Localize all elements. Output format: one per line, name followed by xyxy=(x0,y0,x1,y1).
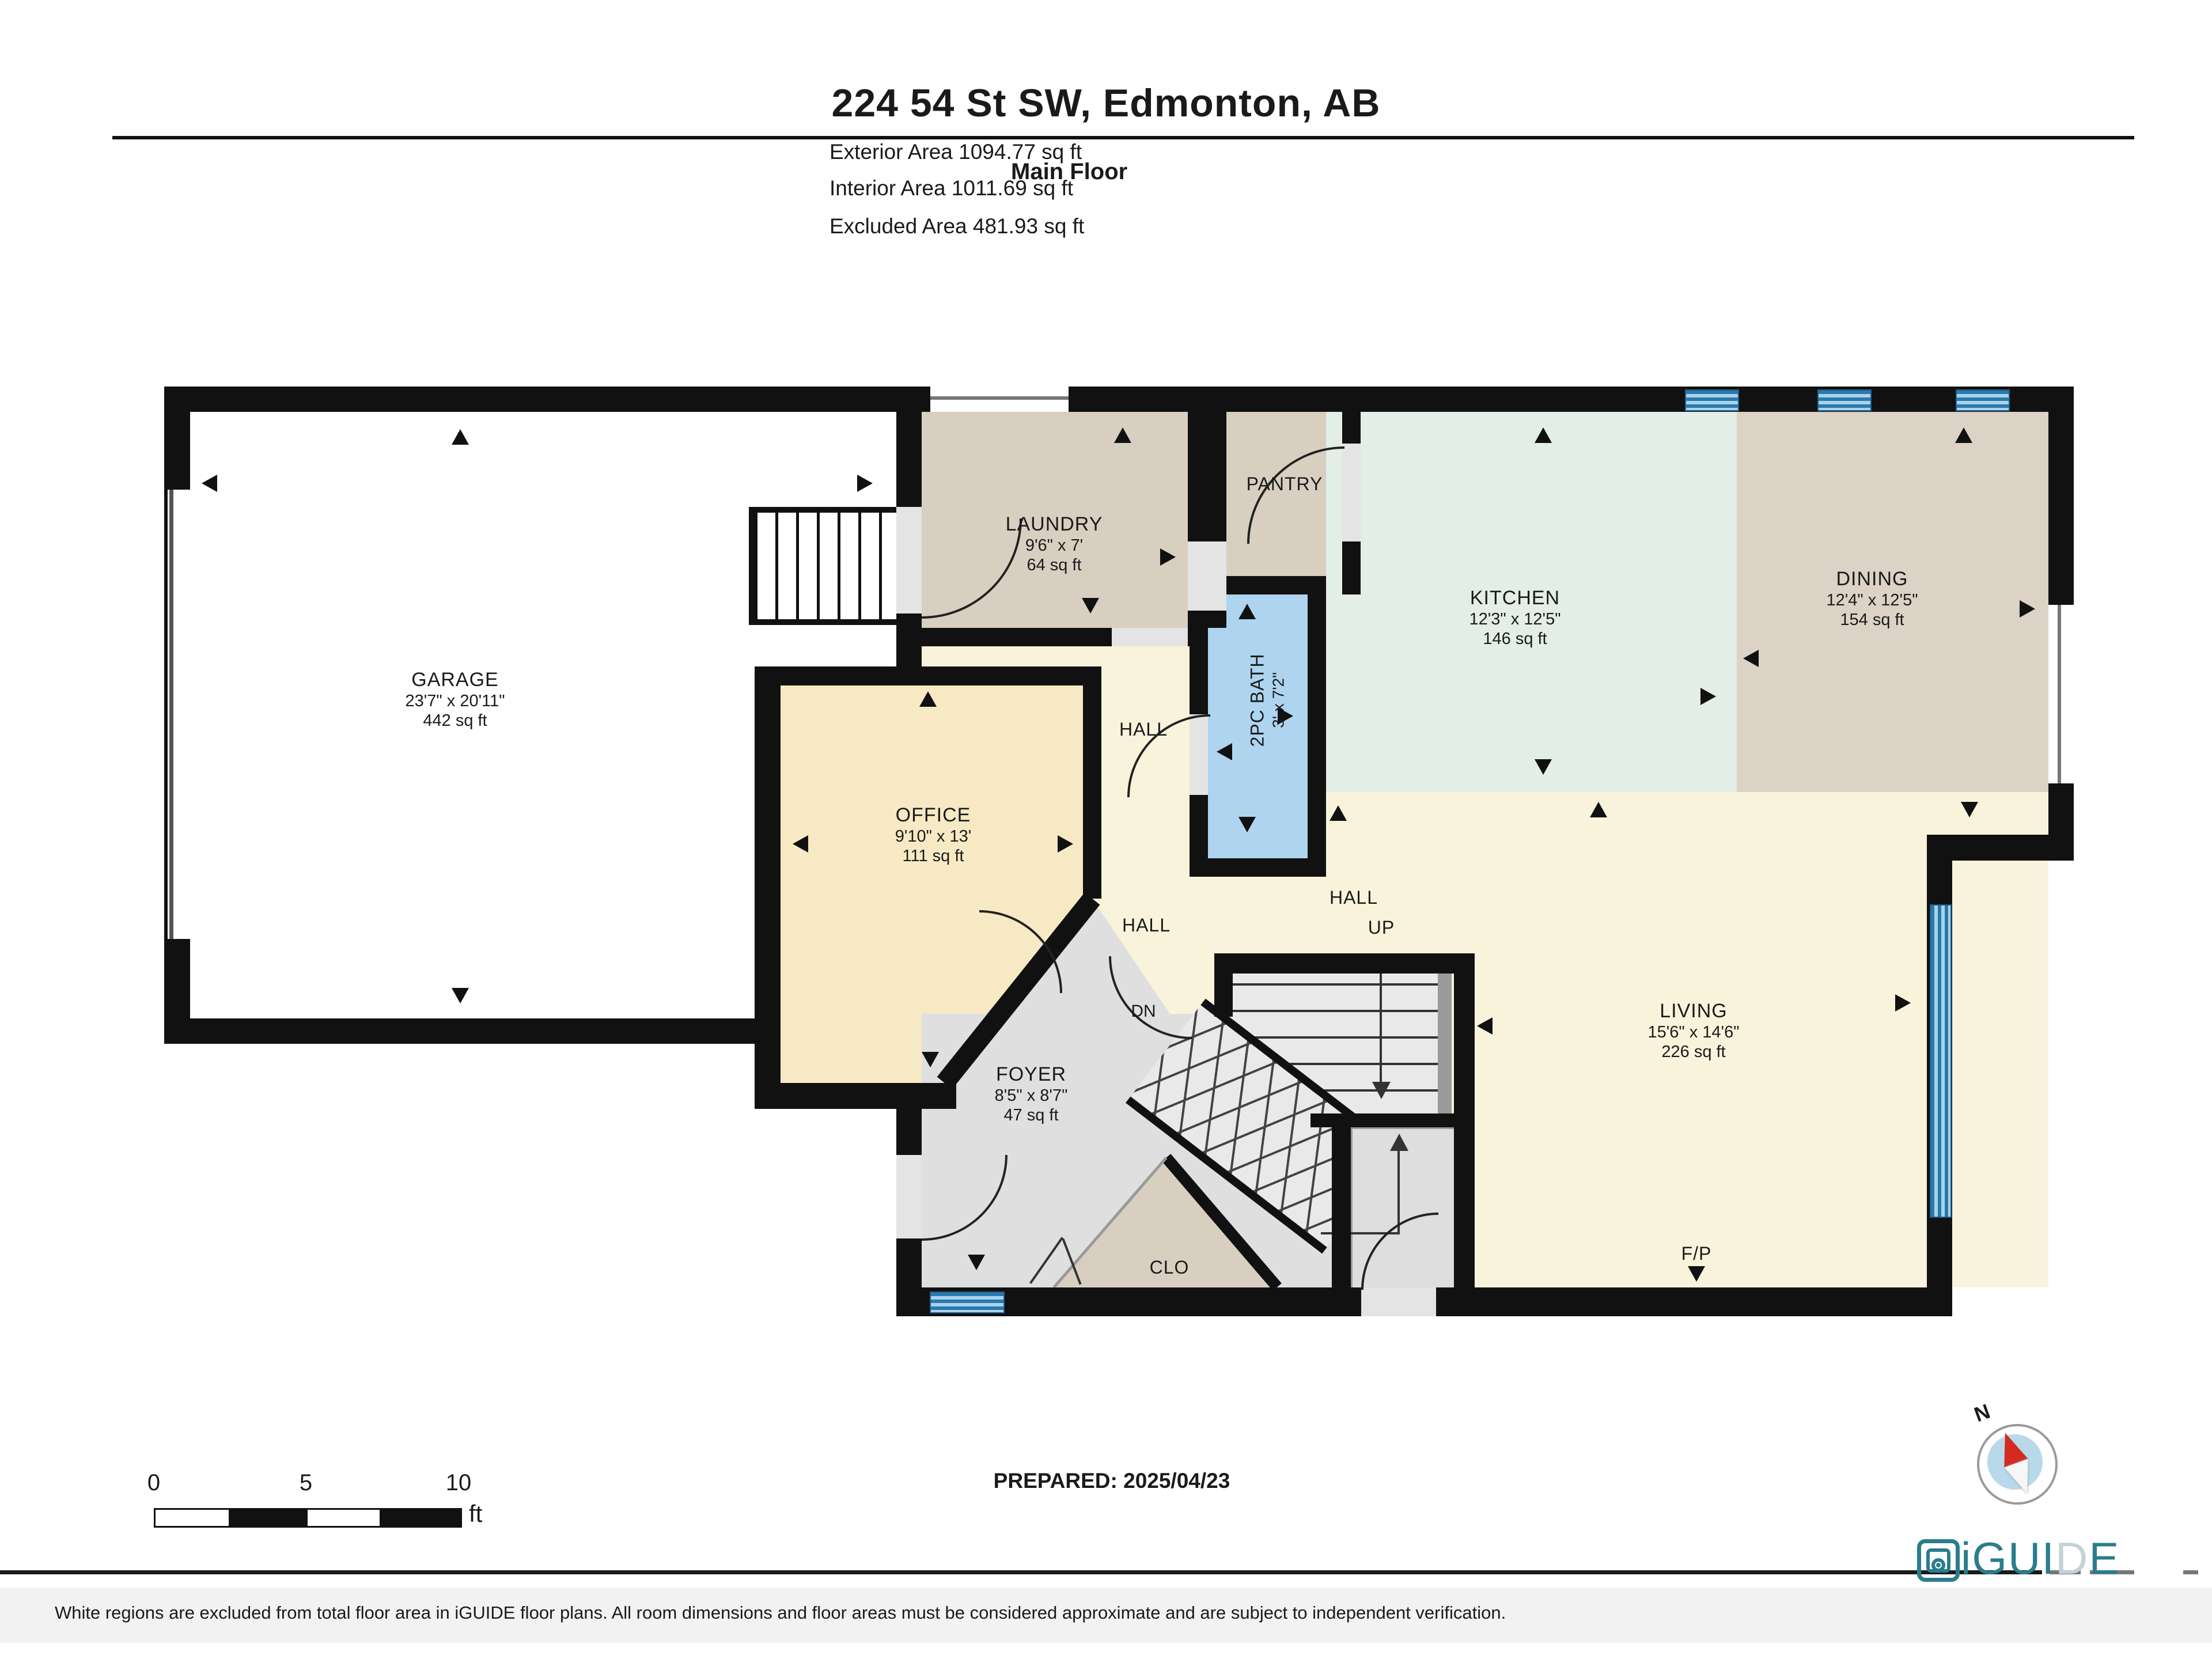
doorway-garage-stairs xyxy=(896,507,922,613)
measure-arrow xyxy=(1955,427,1972,443)
foyer-window xyxy=(930,1291,1005,1313)
measure-arrow xyxy=(1058,835,1073,853)
wall-office-right xyxy=(1083,685,1101,899)
excluded-area-text: Excluded Area 481.93 sq ft xyxy=(829,214,1084,238)
measure-arrow xyxy=(793,835,808,853)
measure-arrow xyxy=(202,475,217,492)
dining-window-2 xyxy=(1817,389,1872,411)
measure-arrow xyxy=(2020,600,2035,618)
doorway-laundry-hall xyxy=(1188,541,1226,611)
wall-landing-top xyxy=(1310,1113,1475,1127)
room-label-hall-lower: HALL xyxy=(1089,915,1204,937)
measure-arrow xyxy=(452,988,469,1003)
iguide-logo-icon xyxy=(1917,1539,1960,1582)
header-divider xyxy=(112,136,2134,139)
doorway-laundry-bottom xyxy=(1112,628,1188,646)
footer-divider xyxy=(0,1570,2042,1574)
room-label-closet: CLO xyxy=(1112,1257,1227,1279)
wall-stairs-left xyxy=(1214,953,1233,1017)
wall-garage-bottom xyxy=(164,1018,781,1044)
wall-bath-right xyxy=(1308,594,1326,877)
scale-tick-0: 0 xyxy=(131,1470,177,1496)
floorplan-page: 224 54 St SW, Edmonton, AB Exterior Area… xyxy=(0,0,2212,1659)
doorway-front-entry xyxy=(1361,1287,1436,1316)
up-stairs-arrow-head xyxy=(1372,1082,1391,1099)
label-up: UP xyxy=(1324,917,1439,939)
room-label-bath: 2PC BATH 3' x 7'2" xyxy=(1247,608,1288,792)
footer-disclaimer: White regions are excluded from total fl… xyxy=(55,1603,1840,1623)
room-label-pantry: PANTRY xyxy=(1227,474,1342,495)
page-title: 224 54 St SW, Edmonton, AB xyxy=(832,81,1381,126)
room-label-kitchen: KITCHEN 12'3" x 12'5" 146 sq ft xyxy=(1394,586,1636,649)
wall-office-left xyxy=(755,666,781,1109)
landing-arrow-line-v xyxy=(1397,1151,1400,1234)
prepared-date: PREPARED: 2025/04/23 xyxy=(979,1469,1244,1493)
measure-arrow xyxy=(452,429,469,445)
interior-area-text: Interior Area 1011.69 sq ft xyxy=(829,176,1073,200)
up-stairs-arrow-line xyxy=(1380,971,1382,1083)
dining-window-3 xyxy=(1956,389,2010,411)
dining-side-window-line xyxy=(2058,605,2061,783)
measure-arrow xyxy=(968,1255,985,1270)
measure-arrow xyxy=(1895,994,1911,1012)
measure-arrow xyxy=(1330,805,1347,821)
wall-dining-step xyxy=(1927,835,2074,861)
label-fireplace: F/P xyxy=(1639,1243,1754,1265)
measure-arrow xyxy=(1700,688,1716,705)
scale-bar-segment xyxy=(229,1510,308,1526)
iguide-logo-text: iGUIDE xyxy=(1961,1532,2120,1585)
measure-arrow xyxy=(1688,1266,1705,1282)
compass-icon xyxy=(1977,1424,2058,1505)
room-label-living: LIVING 15'6" x 14'6" 226 sq ft xyxy=(1573,999,1815,1062)
scale-unit: ft xyxy=(469,1500,482,1528)
scale-tick-5: 5 xyxy=(283,1470,329,1496)
measure-arrow xyxy=(1217,743,1232,760)
garage-door-line xyxy=(169,490,173,939)
measure-arrow xyxy=(1535,427,1552,443)
measure-arrow xyxy=(1082,598,1099,613)
wall-bath-bottom xyxy=(1190,858,1326,877)
wall-stairs-top xyxy=(1214,953,1475,974)
measure-arrow xyxy=(919,691,937,707)
measure-arrow xyxy=(1477,1017,1493,1035)
room-label-laundry: LAUNDRY 9'6" x 7' 64 sq ft xyxy=(933,513,1175,575)
measure-arrow xyxy=(1114,427,1131,443)
measure-arrow xyxy=(1961,802,1978,817)
room-label-dining: DINING 12'4" x 12'5" 154 sq ft xyxy=(1751,567,1993,630)
measure-arrow xyxy=(1535,759,1552,775)
room-label-office: OFFICE 9'10" x 13' 111 sq ft xyxy=(812,804,1054,866)
footer-divider-dash xyxy=(2183,1570,2198,1574)
room-label-foyer: FOYER 8'5" x 8'7" 47 sq ft xyxy=(910,1063,1152,1126)
doorway-foyer-side xyxy=(896,1155,922,1238)
landing-arrow-head xyxy=(1390,1134,1408,1151)
laundry-window-line xyxy=(930,396,1069,400)
dining-window-1 xyxy=(1685,389,1739,411)
living-window xyxy=(1930,904,1952,1218)
scale-bar xyxy=(154,1508,462,1528)
label-dn: DN xyxy=(1092,1001,1195,1021)
measure-arrow xyxy=(857,475,873,492)
dining-side-window-gap xyxy=(2048,605,2074,783)
measure-arrow xyxy=(1238,817,1256,832)
wall-office-top xyxy=(755,666,1101,685)
measure-arrow xyxy=(1590,802,1607,817)
wall-landing-left xyxy=(1332,1127,1351,1287)
measure-arrow xyxy=(1743,650,1759,667)
up-stairs-end xyxy=(1438,959,1452,1113)
scale-bar-segment xyxy=(380,1510,460,1526)
room-label-hall-upper: HALL xyxy=(1086,719,1201,741)
compass-north-label: N xyxy=(1971,1399,1994,1427)
wall-top xyxy=(164,387,2074,412)
doorway-pantry xyxy=(1342,444,1361,541)
room-label-hall-center: HALL xyxy=(1296,887,1411,909)
room-label-garage: GARAGE 23'7" x 20'11" 442 sq ft xyxy=(323,668,588,731)
scale-tick-10: 10 xyxy=(435,1470,482,1496)
garage-stairs xyxy=(749,507,908,625)
